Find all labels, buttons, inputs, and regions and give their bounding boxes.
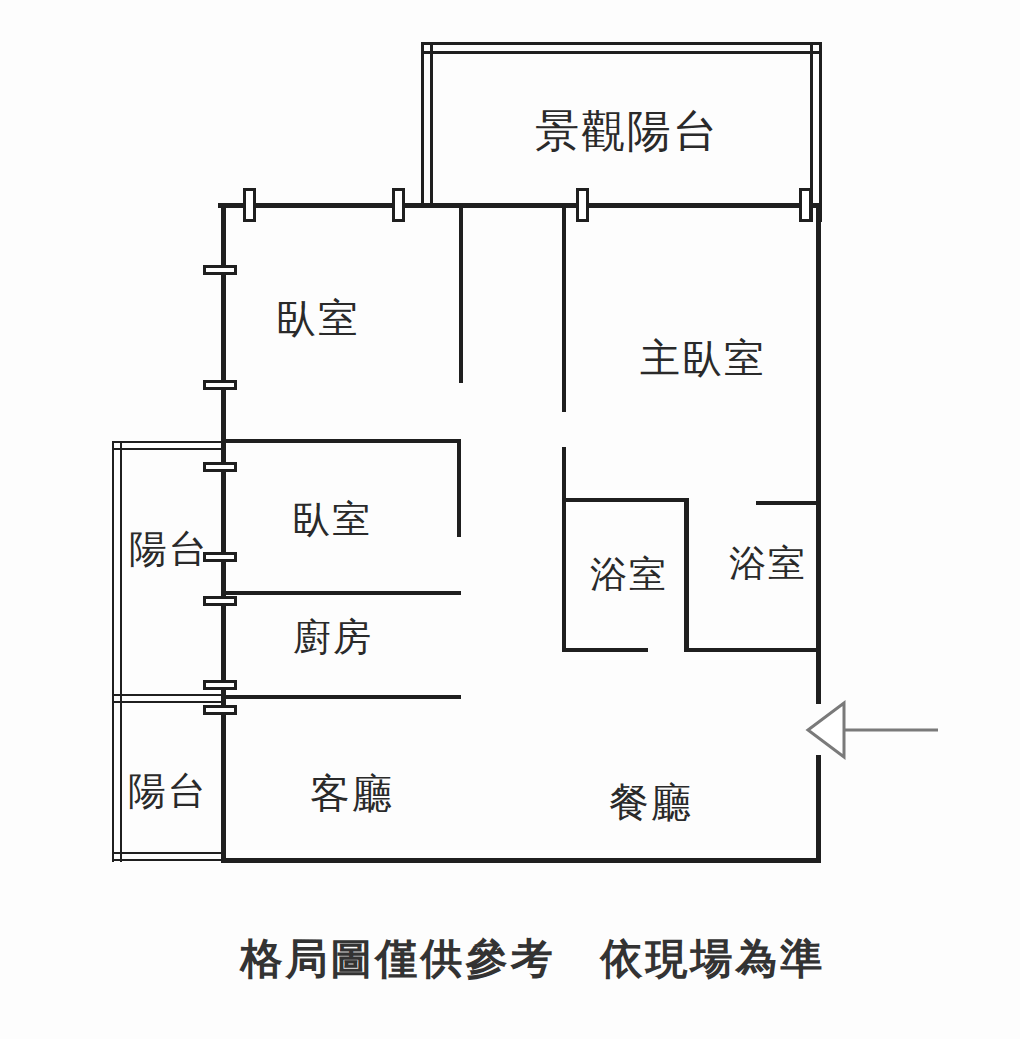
window-icon <box>203 265 237 275</box>
wall-exterior-bottom <box>221 858 821 863</box>
wall-exterior-left <box>221 203 226 863</box>
window-icon <box>243 188 256 222</box>
wall-bath1-top <box>562 498 688 502</box>
window-icon <box>203 380 237 390</box>
scenic-balcony-wall-left <box>421 44 433 204</box>
wall-kitchen-top <box>221 591 461 595</box>
side-balcony-wall-outer <box>112 441 122 862</box>
wall-bedroom2-right <box>457 439 461 537</box>
scenic-balcony-wall-top <box>421 42 822 54</box>
wall-bath-divider <box>684 498 689 652</box>
wall-bath-bottom-left <box>562 648 648 652</box>
label-bathroom1: 浴室 <box>590 550 668 600</box>
label-scenic-balcony: 景觀陽台 <box>535 102 719 161</box>
wall-exterior-top <box>218 203 820 208</box>
label-kitchen: 廚房 <box>293 612 373 663</box>
window-icon <box>203 462 237 472</box>
label-bedroom2: 臥室 <box>292 494 372 545</box>
label-master-bedroom: 主臥室 <box>640 331 766 386</box>
label-bathroom2: 浴室 <box>729 539 807 589</box>
window-icon <box>576 188 589 222</box>
wall-bedroom2-top <box>221 439 461 443</box>
entrance-arrow-icon <box>800 695 945 765</box>
label-bedroom1: 臥室 <box>276 291 360 346</box>
wall-bath2-top <box>756 501 821 505</box>
wall-center-lower <box>562 447 566 652</box>
floor-plan: 景觀陽台 臥室 主臥室 陽台 臥室 廚房 浴室 浴室 陽台 客廳 餐廳 格局圖僅… <box>0 0 1020 1039</box>
window-icon <box>799 188 812 222</box>
side-balcony-wall-top <box>112 441 224 450</box>
wall-bath-bottom-right <box>684 648 821 652</box>
wall-center-upper <box>562 203 566 412</box>
window-icon <box>203 596 237 606</box>
label-balcony-upper: 陽台 <box>129 524 209 575</box>
caption-disclaimer: 格局圖僅供參考 依現場為準 <box>241 931 826 987</box>
side-balcony-wall-bottom <box>112 852 224 861</box>
label-living-room: 客廳 <box>310 766 394 821</box>
side-balcony-wall-divider <box>112 694 224 703</box>
wall-bedroom1-right <box>459 203 463 383</box>
window-icon <box>392 188 405 222</box>
window-icon <box>203 680 237 690</box>
wall-exterior-right-upper <box>816 203 821 704</box>
wall-kitchen-bottom <box>221 695 461 699</box>
window-icon <box>203 705 237 715</box>
label-balcony-lower: 陽台 <box>128 766 208 817</box>
wall-exterior-right-lower <box>816 755 821 863</box>
label-dining-room: 餐廳 <box>609 775 693 830</box>
